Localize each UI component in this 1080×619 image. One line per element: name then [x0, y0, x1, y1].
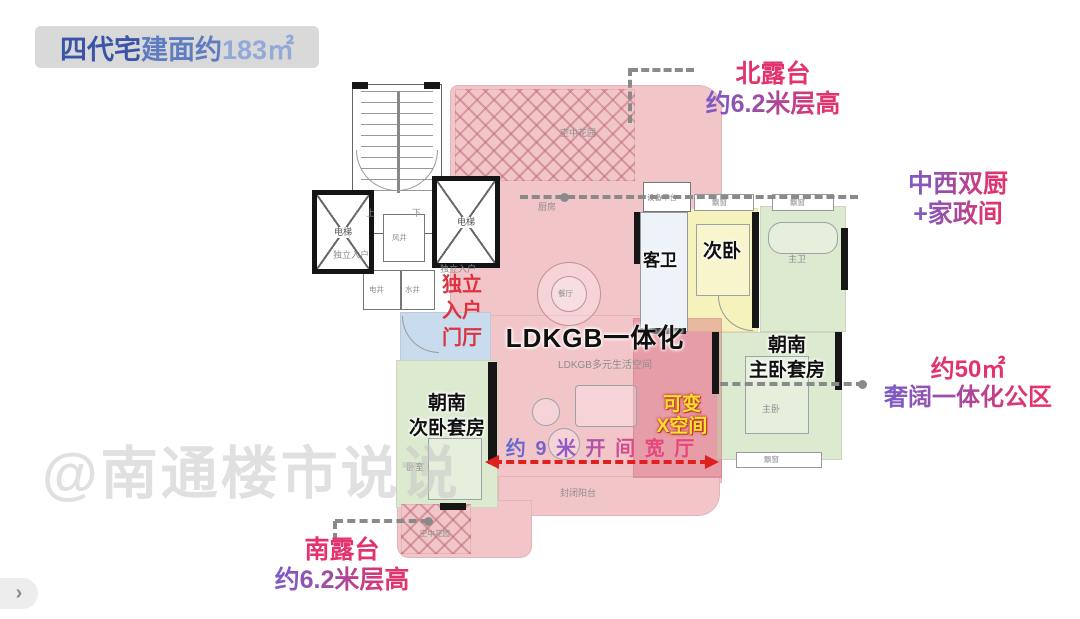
north-terrace-line1: 北露台 [735, 60, 810, 88]
south-terrace-line2: 约6.2米层高 [275, 566, 410, 594]
south-suite-line1: 朝南 [428, 393, 466, 414]
callout-private-foyer: 独立 入户 门厅 [428, 272, 496, 351]
leader-dual-kitchen [520, 195, 858, 199]
variable-space-line2: X空间 [657, 416, 708, 437]
sky-garden-south-label: 空中花园 [420, 528, 450, 539]
wall-segment [752, 212, 759, 328]
elevator-right-label: 电梯 [455, 217, 477, 228]
elevator-right: 电梯 [432, 176, 500, 268]
water-shaft-label: 水井 [405, 284, 420, 295]
master-bedroom-label: 主卧 [762, 402, 780, 415]
callout-south-terrace: 南露台 约6.2米层高 [262, 536, 422, 595]
north-terrace-line2: 约6.2米层高 [706, 90, 841, 118]
enclosed-balcony-label: 封闭阳台 [560, 486, 596, 499]
callout-dual-kitchen: 中西双厨 +家政间 [858, 170, 1058, 229]
electric-shaft-label: 电井 [369, 284, 384, 295]
wall-segment [424, 82, 440, 89]
ldkgb-subtitle: LDKGB多元生活空间 [505, 356, 705, 371]
master-suite-line1: 朝南 [768, 335, 806, 356]
wall-segment [352, 82, 368, 89]
ldkgb-title: LDKGB一体化 [485, 322, 705, 356]
south-terrace-line1: 南露台 [304, 536, 379, 564]
variable-space-line1: 可变 [663, 394, 701, 415]
master-bath-label: 主卫 [788, 252, 806, 265]
elevator-left-label: 电梯 [332, 227, 354, 238]
armchair [532, 398, 560, 426]
private-entry-label-left: 独立入户 [333, 248, 369, 261]
wall-segment [712, 332, 719, 394]
callout-public-zone: 约50㎡ 奢阔一体化公区 [866, 356, 1070, 413]
bay-window-label-3: 飘窗 [764, 454, 779, 465]
second-bedroom-label: 次卧 [688, 240, 756, 265]
callout-north-terrace: 北露台 约6.2米层高 [688, 60, 858, 119]
master-suite-label: 朝南 主卧套房 [722, 334, 852, 383]
callout-variable-space: 可变 X空间 [646, 394, 718, 439]
public-zone-line2: 奢阔一体化公区 [884, 384, 1052, 411]
stair-down-label: 下 [412, 206, 421, 219]
leader-north-terrace-h [630, 68, 694, 72]
title-badge: 四代宅建面约183㎡ [35, 26, 319, 68]
kitchen-label: 厨房 [538, 200, 556, 213]
leader-north-terrace-v [628, 68, 632, 123]
leader-south-terrace-h [335, 519, 429, 523]
bay-width-arrow-left [485, 455, 499, 469]
guest-bath-label: 客卫 [633, 250, 687, 272]
sofa [575, 385, 637, 427]
bay-width-arrow-line [494, 460, 708, 464]
wind-shaft-label: 风井 [392, 232, 407, 243]
bay-window-master-bedroom [736, 452, 822, 468]
public-zone-line1: 约50㎡ [931, 356, 1006, 383]
watermark: @南通楼市说说 [42, 428, 461, 510]
leader-south-terrace-dot [424, 517, 433, 526]
north-sky-garden-hatch [455, 89, 635, 181]
dual-kitchen-line1: 中西双厨 [908, 170, 1008, 198]
wall-segment [841, 228, 848, 290]
pager-next-button[interactable]: › [0, 578, 38, 609]
private-foyer-line1: 独立 [442, 274, 482, 296]
chevron-right-icon: › [16, 582, 23, 605]
leader-public-zone [720, 382, 864, 386]
sky-garden-north-label: 空中花园 [560, 126, 596, 139]
leader-dual-kitchen-dot [560, 193, 569, 202]
bathtub [768, 222, 838, 254]
dual-kitchen-line2: +家政间 [913, 200, 1003, 228]
bay-width-arrow-right [705, 455, 719, 469]
private-foyer-line2: 入户 [442, 300, 482, 322]
elevator-left: 电梯 [312, 190, 374, 274]
badge-area-value: 183㎡ [222, 28, 294, 67]
badge-house-type: 四代宅 [60, 28, 141, 67]
badge-area-label: 建面约 [141, 28, 222, 67]
private-foyer-line3: 门厅 [442, 327, 482, 349]
stair-up-label: 上 [366, 206, 375, 219]
callout-bay-width: 约 9 米 开 间 宽 厅 [496, 438, 706, 462]
dining-label: 餐厅 [558, 288, 573, 299]
master-suite-line2: 主卧套房 [749, 360, 825, 381]
